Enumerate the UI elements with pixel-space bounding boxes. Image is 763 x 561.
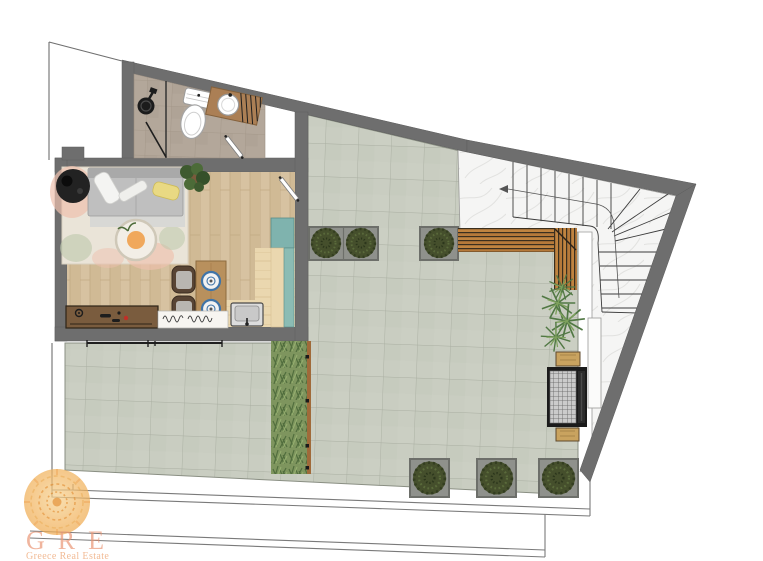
doormat	[158, 311, 228, 328]
teal-cabinet	[271, 218, 294, 327]
grass-planter	[271, 341, 311, 474]
coffee-table	[116, 220, 156, 260]
sofa	[88, 168, 185, 227]
floor-plan-canvas: GRE Greece Real Estate	[0, 0, 763, 561]
bottom-planter-2	[477, 459, 516, 497]
single-planter	[420, 227, 458, 260]
bottom-planter-3	[539, 459, 578, 497]
apartment-bottom-wall	[55, 327, 308, 341]
landing-wall-stub	[588, 318, 601, 408]
brand-logo: GRE Greece Real Estate	[24, 469, 117, 561]
side-table	[56, 169, 90, 203]
dining-chair-1	[172, 266, 195, 293]
plate-1	[202, 272, 220, 290]
desk	[66, 306, 158, 328]
apartment-wall-jog	[62, 147, 84, 160]
planter-edge	[307, 341, 311, 474]
bottom-planter-1	[410, 459, 449, 497]
bathroom-left-wall	[122, 62, 134, 161]
double-planter	[309, 227, 378, 260]
floor-plan-drawing: GRE Greece Real Estate	[0, 0, 763, 561]
desk-red-item	[124, 316, 128, 320]
living-room	[50, 163, 300, 328]
boundary-top-line	[49, 42, 122, 61]
apartment-right-wall	[295, 112, 308, 341]
brand-subtitle: Greece Real Estate	[26, 551, 109, 561]
counter-strip	[271, 248, 284, 327]
kitchen-sink	[231, 303, 263, 326]
